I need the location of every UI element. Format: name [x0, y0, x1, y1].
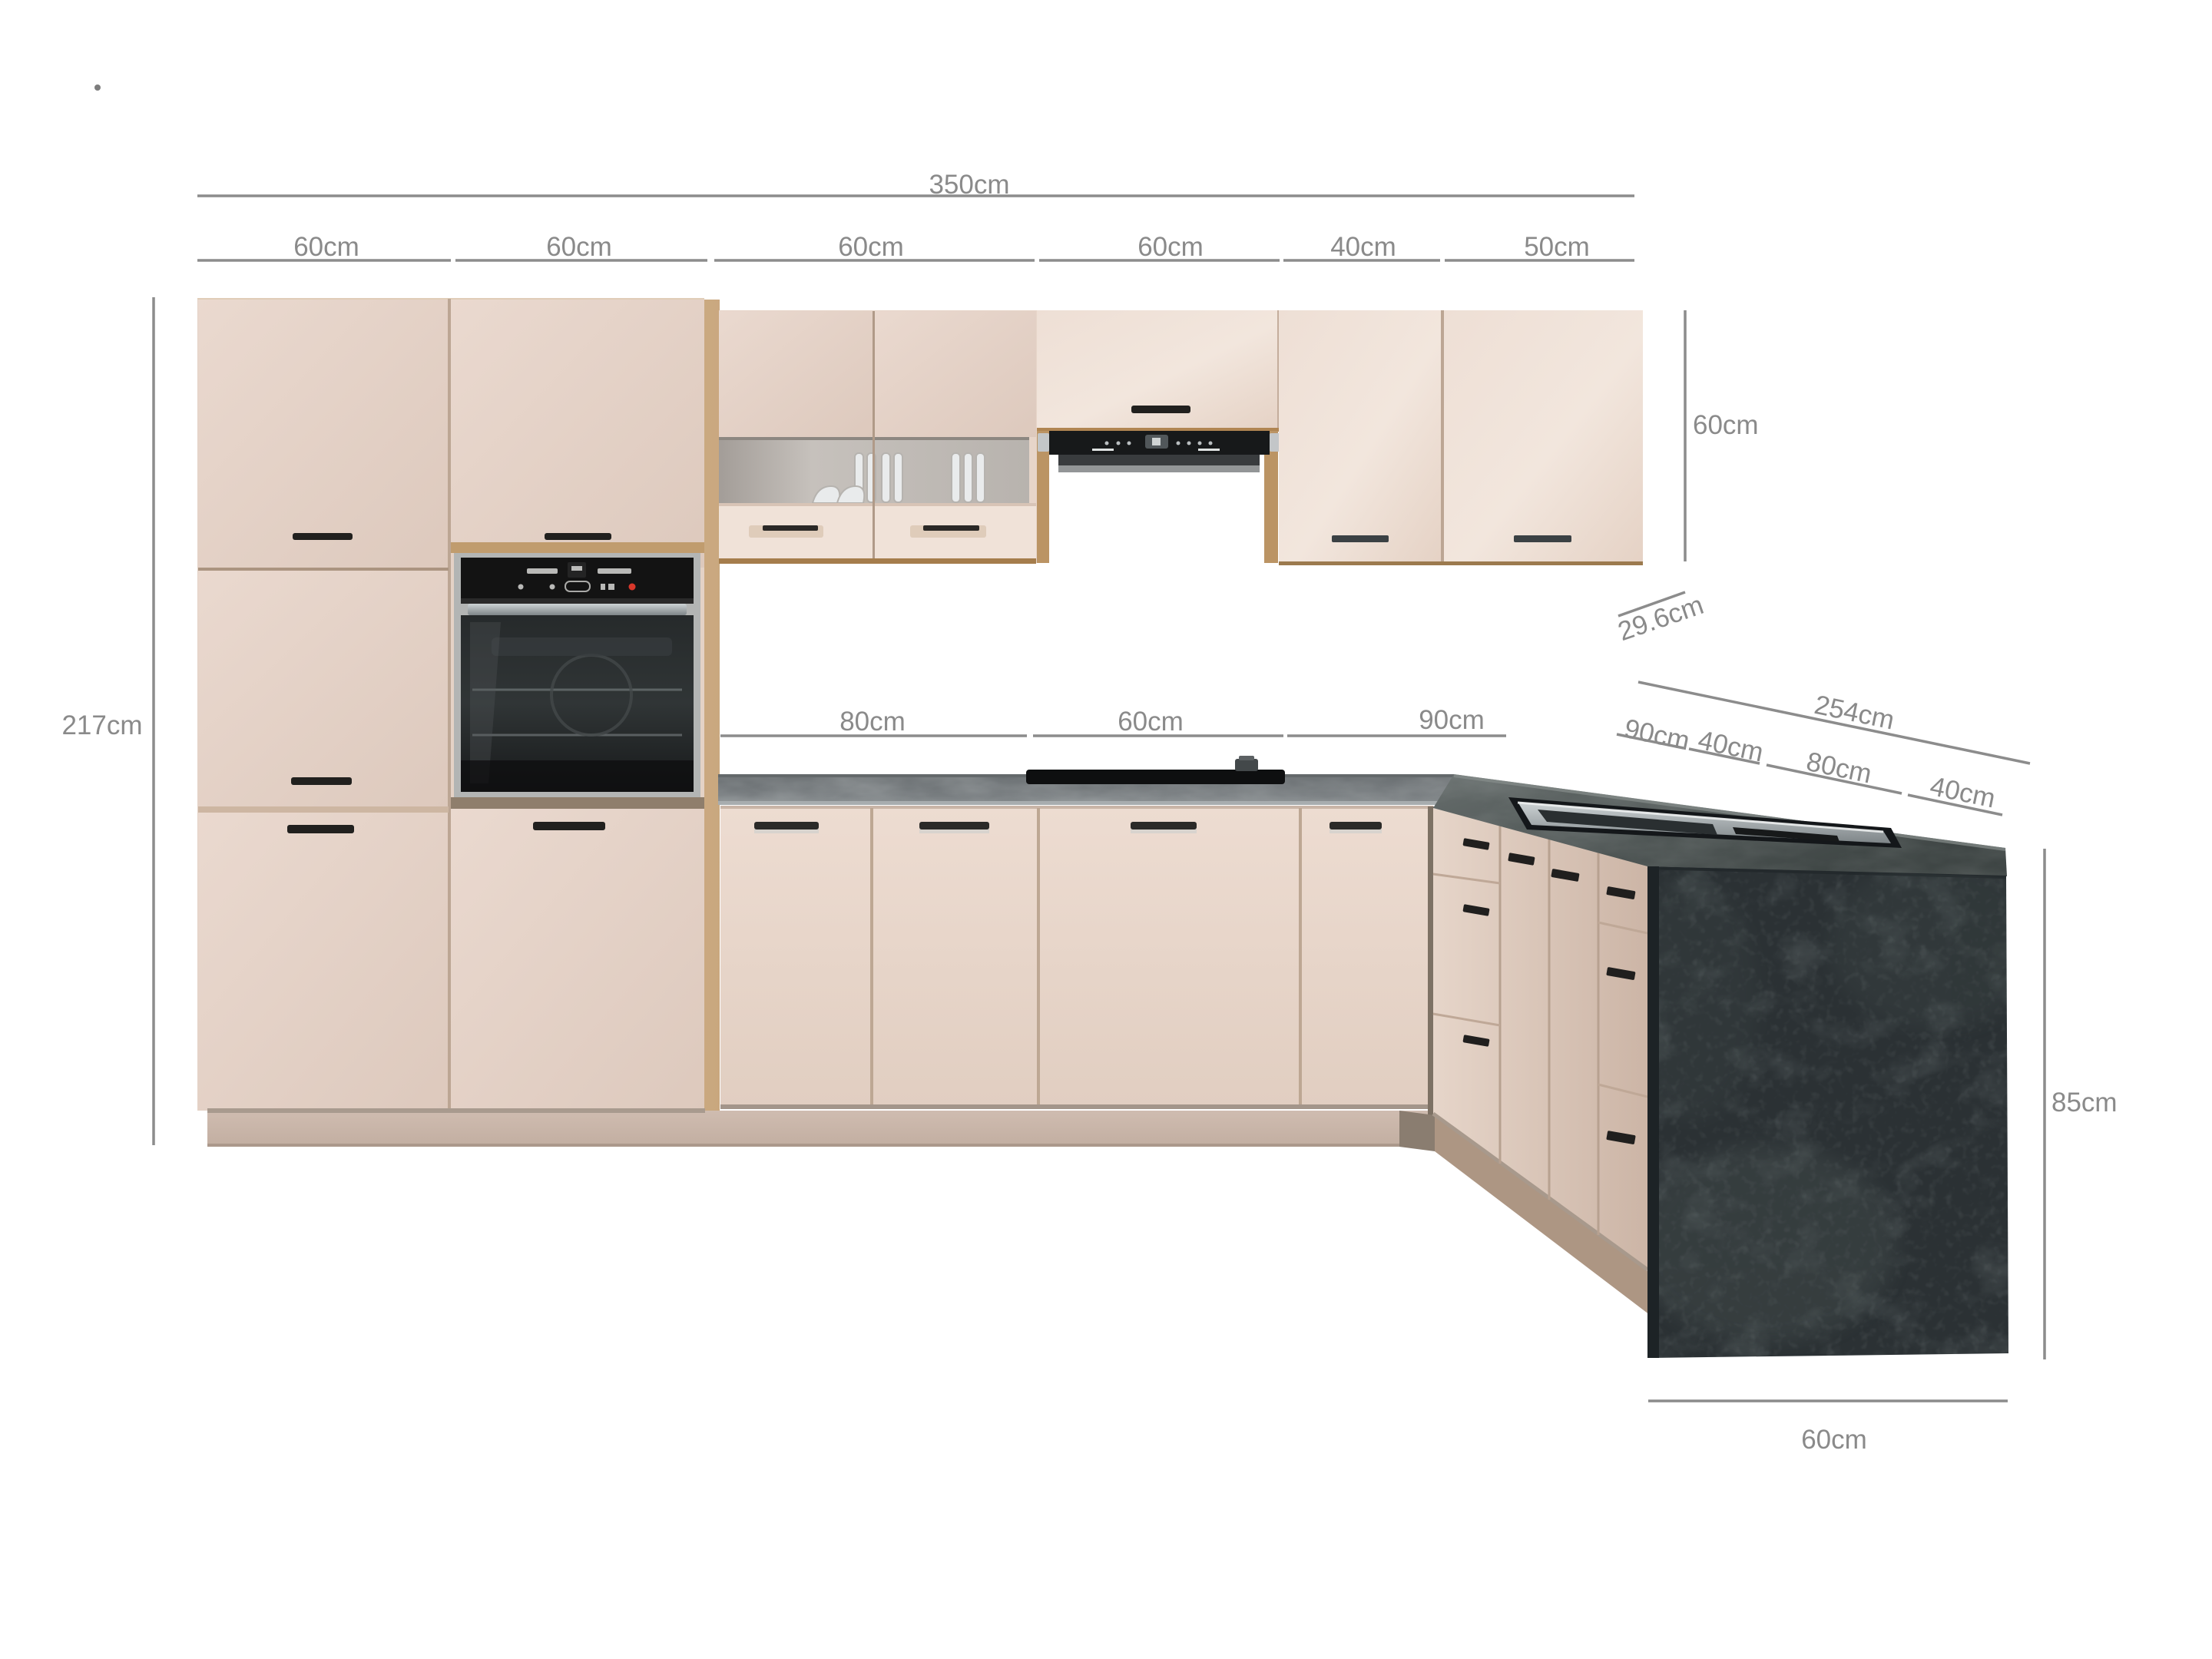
svg-text:90cm: 90cm: [1419, 705, 1485, 735]
svg-text:60cm: 60cm: [1137, 232, 1204, 262]
svg-text:60cm: 60cm: [1118, 707, 1184, 737]
svg-text:60cm: 60cm: [1801, 1425, 1867, 1455]
svg-text:350cm: 350cm: [929, 170, 1009, 200]
svg-text:40cm: 40cm: [1330, 232, 1396, 262]
svg-text:50cm: 50cm: [1524, 232, 1590, 262]
svg-text:60cm: 60cm: [1693, 410, 1759, 440]
svg-text:217cm: 217cm: [61, 710, 142, 740]
svg-text:80cm: 80cm: [839, 707, 906, 737]
svg-text:60cm: 60cm: [293, 232, 359, 262]
svg-text:85cm: 85cm: [2051, 1088, 2118, 1118]
svg-text:60cm: 60cm: [838, 232, 904, 262]
svg-text:60cm: 60cm: [546, 232, 612, 262]
